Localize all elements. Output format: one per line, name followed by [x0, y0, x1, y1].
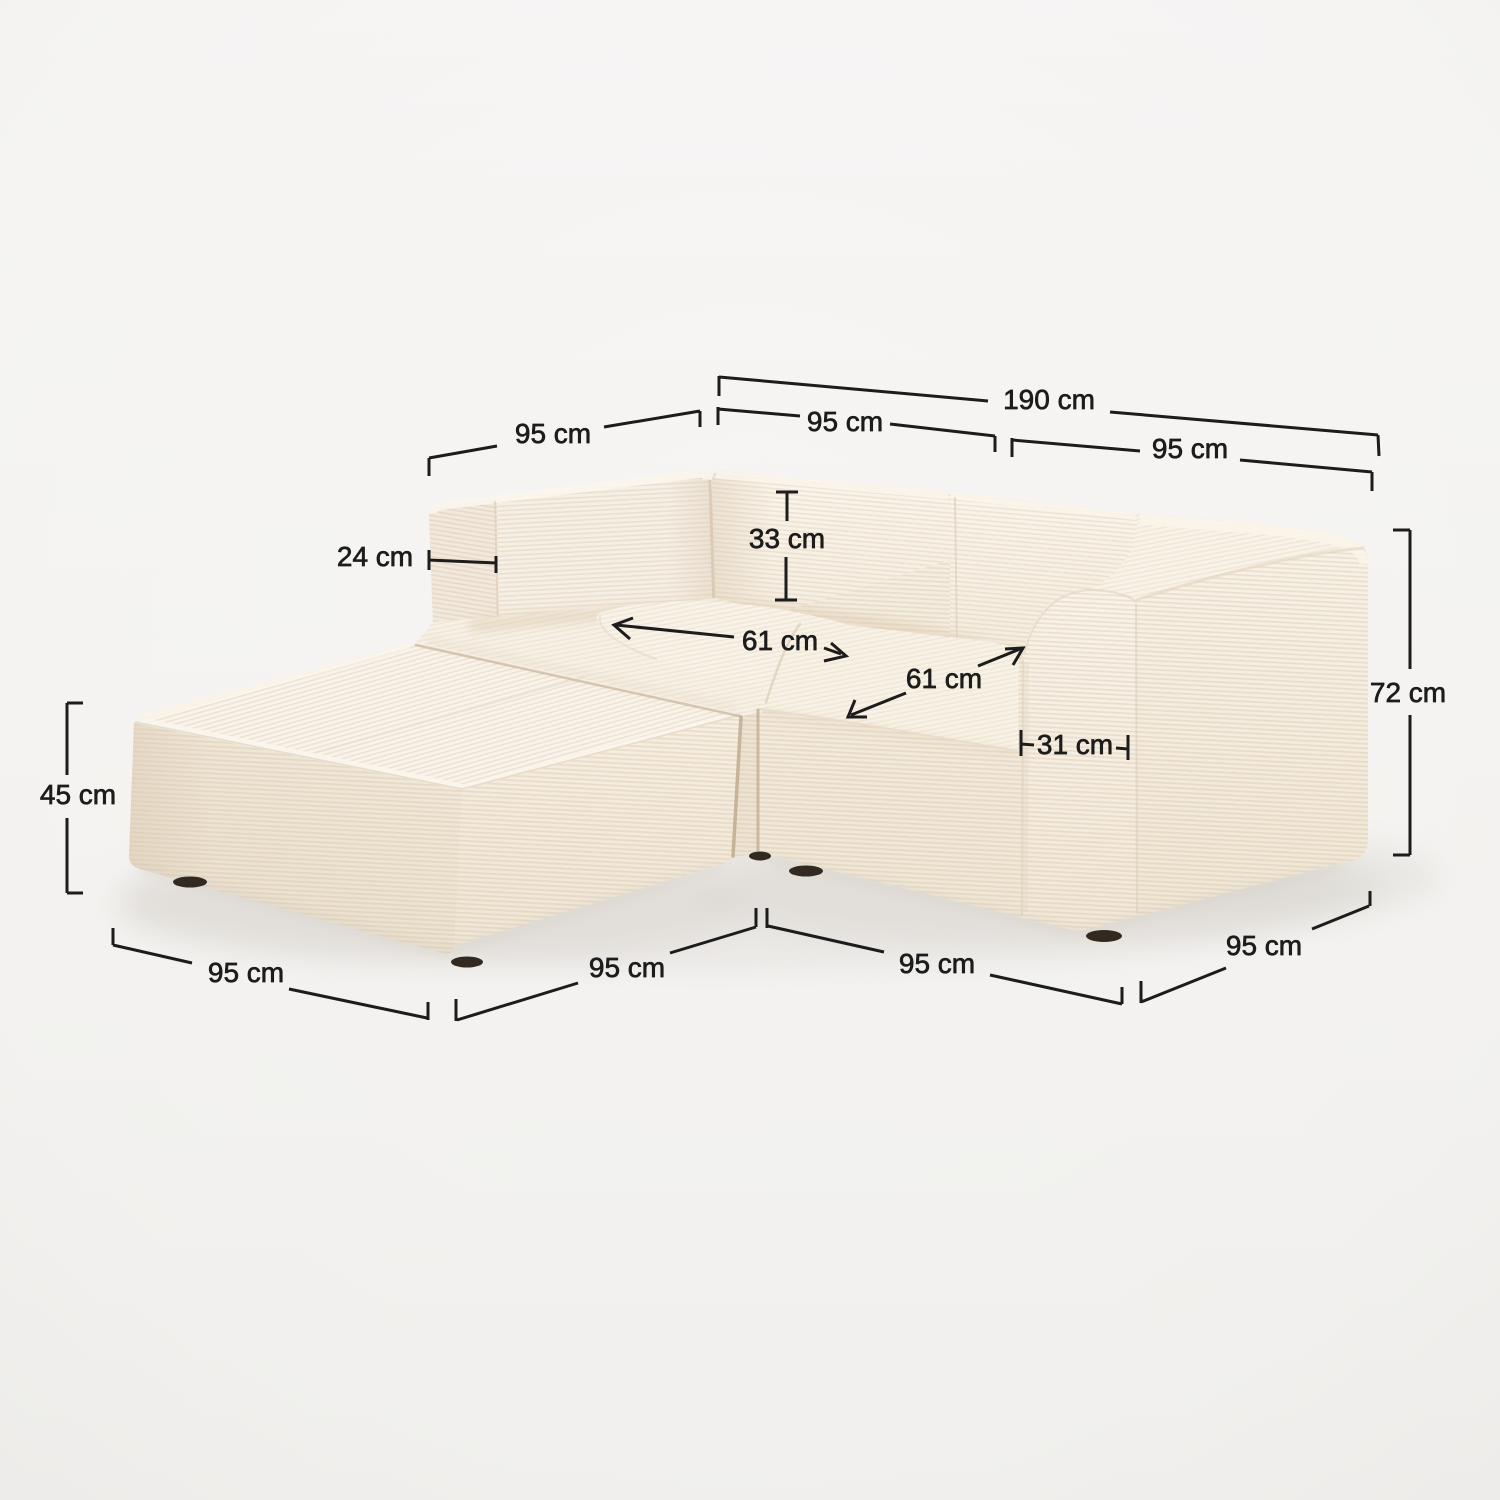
svg-text:61 cm: 61 cm [906, 663, 982, 694]
svg-text:95 cm: 95 cm [1226, 930, 1302, 961]
svg-text:61 cm: 61 cm [742, 625, 818, 656]
svg-text:95 cm: 95 cm [899, 948, 975, 979]
svg-text:190 cm: 190 cm [1003, 384, 1095, 415]
svg-text:31 cm: 31 cm [1037, 729, 1113, 760]
svg-text:33 cm: 33 cm [749, 523, 825, 554]
svg-text:45 cm: 45 cm [40, 779, 116, 810]
svg-text:95 cm: 95 cm [589, 952, 665, 983]
svg-text:95 cm: 95 cm [1152, 433, 1228, 464]
svg-text:24 cm: 24 cm [337, 541, 413, 572]
svg-text:95 cm: 95 cm [515, 418, 591, 449]
svg-text:95 cm: 95 cm [807, 406, 883, 437]
svg-text:95 cm: 95 cm [208, 957, 284, 988]
svg-text:72 cm: 72 cm [1370, 677, 1446, 708]
